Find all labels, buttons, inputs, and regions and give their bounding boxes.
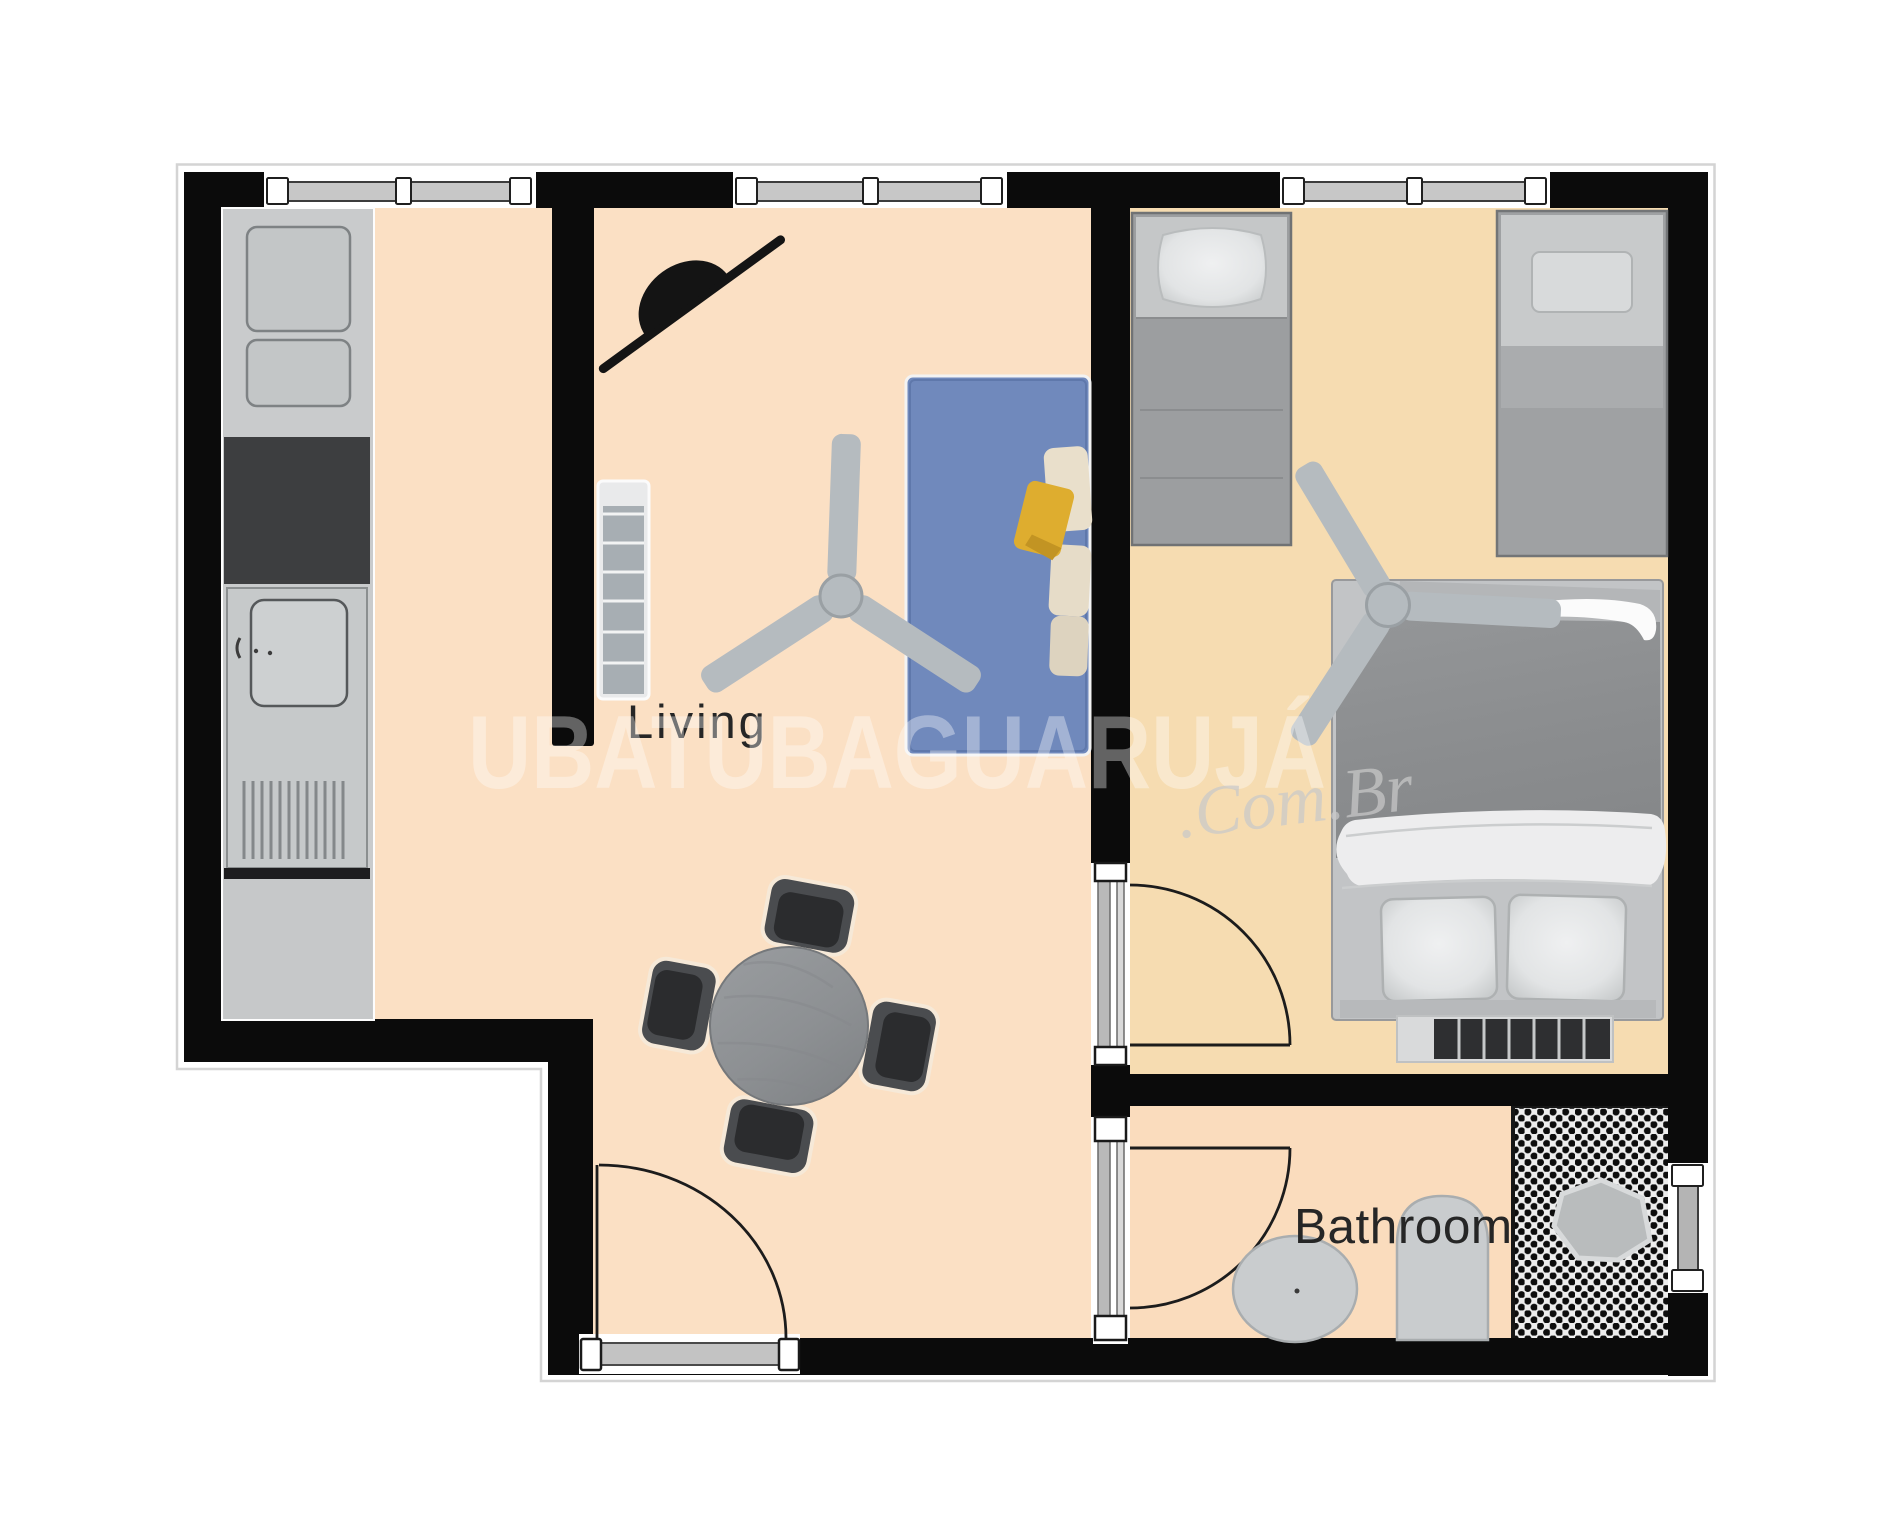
svg-text:Bathroom: Bathroom	[1294, 1199, 1513, 1254]
